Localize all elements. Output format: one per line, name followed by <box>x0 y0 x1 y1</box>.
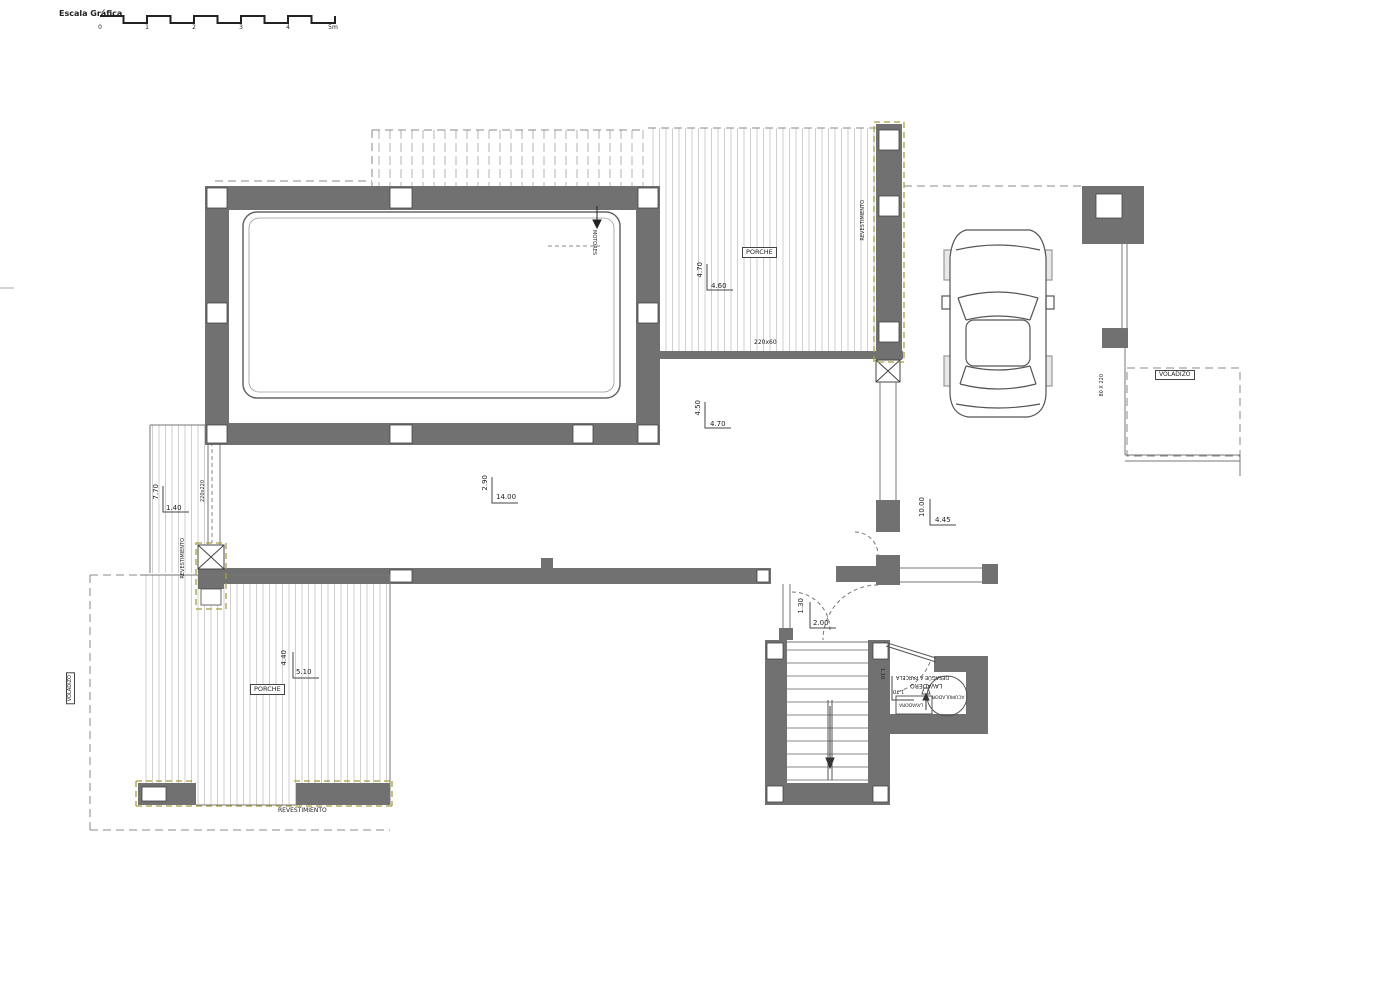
cladding-right-label: REVESTIMIENTO <box>861 200 866 241</box>
scale-tick-1: 1 <box>145 25 149 31</box>
scale-bar-title: Escala Gráfica <box>59 10 122 18</box>
dim-porch-left-v: 4.40 <box>281 650 288 666</box>
dim-living-b-v: 2.90 <box>482 475 489 491</box>
door-arcs <box>792 532 930 693</box>
beam-size-label: 220x60 <box>754 340 777 346</box>
boiler-label: ACUMULADOR <box>932 693 964 698</box>
cladding-left-label: REVESTIMIENTO <box>181 538 186 579</box>
scale-tick-5: 5m <box>328 25 338 31</box>
overhang-left-label: VOLADIZO <box>66 672 75 704</box>
dim-laundry-v: 1.10 <box>879 668 884 679</box>
overhang-right-label: VOLADIZO <box>1155 370 1195 380</box>
washer-label: LAVADORA <box>899 701 923 706</box>
scale-tick-4: 4 <box>286 25 290 31</box>
porch-top-decking <box>648 128 876 352</box>
dim-living-a-h: 4.70 <box>710 421 726 428</box>
dim-laundry-h: 1.70 <box>893 688 904 693</box>
pool-motors-label: MOTORES <box>591 230 596 255</box>
pool-basin <box>243 212 620 398</box>
scale-bar <box>100 16 335 23</box>
opening-size-label: 80 X 220 <box>1100 374 1105 397</box>
cladding-bottom-label: REVESTIMIENTO <box>278 808 327 814</box>
dim-garage-v: 10.00 <box>919 497 926 517</box>
porch-top-label: PORCHE <box>742 247 777 258</box>
dim-living-b-h: 14.00 <box>496 494 516 501</box>
dim-porch-left-h: 5.10 <box>296 669 312 676</box>
plan-linework <box>0 0 1400 990</box>
dim-living-a-v: 4.50 <box>695 400 702 416</box>
x-pillars <box>198 360 900 569</box>
car <box>942 230 1054 417</box>
laundry-room-label: LAVADERO <box>910 682 942 688</box>
pillar-size-label: 220x220 <box>201 480 206 502</box>
dim-porch-top-v: 4.70 <box>697 262 704 278</box>
pergola-slats <box>372 130 645 186</box>
scale-tick-3: 3 <box>239 25 243 31</box>
porch-left-label: PORCHE <box>250 684 285 695</box>
laundry-drain-label: DESAGÜE A PARCELA <box>896 674 949 679</box>
dim-entry-v: 1.30 <box>798 598 805 614</box>
dim-porch-top-h: 4.60 <box>711 283 727 290</box>
dim-left-deck-v: 7.70 <box>153 484 160 500</box>
floor-plan: Escala Gráfica 0 1 2 3 4 5m MOTORES PORC… <box>0 0 1400 990</box>
scale-tick-0: 0 <box>98 25 102 31</box>
dim-left-deck-h: 1.40 <box>166 505 182 512</box>
dim-entry-h: 2.00 <box>813 620 829 627</box>
dim-garage-h: 4.45 <box>935 517 951 524</box>
scale-tick-2: 2 <box>192 25 196 31</box>
